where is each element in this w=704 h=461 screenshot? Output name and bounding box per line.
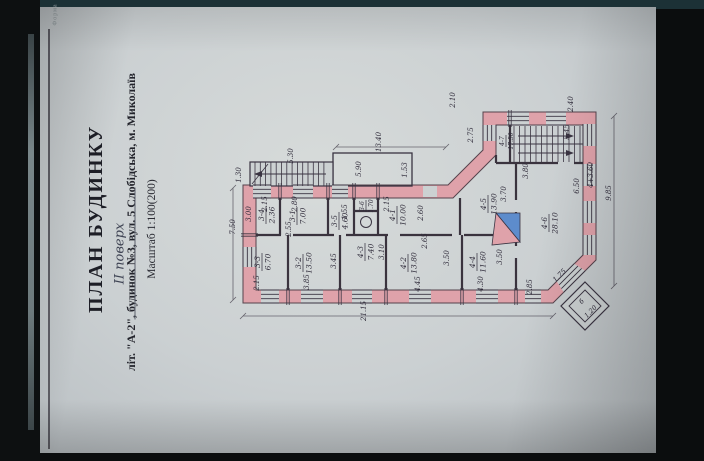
dimension-label: 2.15 (261, 196, 269, 213)
room-area: 6.70 (264, 253, 273, 270)
dimension-label: 3.00 (245, 206, 253, 222)
room-label: 4-717.50 (499, 132, 515, 149)
room-number: 3-5 (330, 215, 339, 227)
dimension-label: 4+3.60 (587, 162, 595, 189)
room-area: 13.90 (490, 193, 499, 215)
room-label: 4-213.80 (399, 252, 419, 274)
dimension-label: 6.50 (573, 178, 581, 194)
dimension-label: 2.40 (567, 96, 575, 113)
room-number: 4-6 (540, 217, 549, 230)
door-opening (423, 186, 437, 197)
room-area: 7.40 (367, 243, 376, 260)
dimension-label: 5.45 (563, 124, 571, 140)
page-edge (28, 34, 34, 430)
room-area: 7.00 (299, 207, 308, 224)
dimension-label: 21.15 (360, 300, 368, 322)
photo-of-floor-plan-document: Форма ПЛАН БУДИНКУ літ. "А-2", будинок №… (0, 0, 704, 461)
window (301, 291, 323, 303)
window (332, 186, 348, 198)
room-label: 4-37.40 (356, 243, 376, 261)
dimension-label: 3.50 (443, 250, 451, 266)
room-area: 13.50 (305, 252, 314, 274)
room-area: 13.80 (410, 252, 419, 274)
window (546, 113, 566, 125)
dimension-label: 2.65 (421, 233, 429, 250)
dimension-label: 3.85 (303, 274, 311, 290)
floor-plan-drawing: 3-42.363-17.003-54.603-61.704-110.004-51… (40, 7, 704, 461)
wc-fixture-icon (361, 217, 372, 228)
room-number: 4-4 (468, 256, 477, 269)
room-label: 4-411.60 (468, 251, 488, 273)
dimension-label: 2.75 (467, 127, 475, 144)
dimension-label: 2.15 (253, 275, 261, 292)
dimension-label: 2.80 (291, 196, 299, 213)
dimension-label: 1.53 (401, 162, 409, 178)
window (293, 186, 313, 198)
dimension-label: 13.40 (375, 131, 383, 152)
room-label: 3-213.50 (294, 252, 314, 274)
dimension-label: 2.55 (285, 221, 293, 238)
window (253, 186, 271, 198)
room-area: 28.10 (551, 212, 560, 235)
dimension-label: 3.80 (522, 163, 530, 179)
room-label: 4-513.90 (479, 193, 499, 215)
dimension-label: 1.30 (235, 167, 243, 183)
dimension-label: 2.10 (449, 92, 457, 109)
window (584, 235, 596, 255)
dimension-label: 3.10 (378, 244, 386, 260)
dimension-label: 3.45 (330, 253, 338, 269)
room-number: 3-3 (253, 256, 262, 268)
dimension-label: 9.85 (605, 185, 613, 201)
corner-balcony (561, 282, 609, 330)
stove (492, 213, 520, 245)
window (352, 291, 372, 303)
dimension-label: 4.30 (477, 276, 485, 293)
dimension-label: 2.60 (417, 205, 425, 222)
dimension-label: 1.55 (341, 204, 349, 220)
dimension-label: 5.30 (287, 148, 295, 164)
room-number: 3-2 (294, 257, 303, 269)
dimension-label: 5.90 (355, 161, 363, 177)
room-number: 4-2 (399, 257, 408, 270)
dimension-label: 7.50 (229, 219, 237, 235)
window (507, 113, 529, 125)
room-number: 4-5 (479, 198, 488, 211)
room-number: 4-3 (356, 246, 365, 259)
dimension-label: 4.45 (414, 276, 422, 293)
room-area: 17.50 (508, 132, 515, 149)
room-number: 3-6 (359, 201, 366, 211)
window (584, 201, 596, 223)
room-area: 11.60 (479, 251, 488, 273)
dimension-label: 2.15 (383, 196, 391, 213)
window (484, 125, 496, 141)
photo-background-left (0, 0, 40, 461)
room-label: 4-628.10 (540, 212, 560, 235)
room-number: 4-7 (499, 136, 506, 147)
dimension-label: 3.50 (496, 249, 504, 265)
room-area: 10.00 (399, 204, 408, 226)
dimension-label: 2.85 (526, 279, 534, 296)
document-paper: Форма ПЛАН БУДИНКУ літ. "А-2", будинок №… (40, 7, 656, 453)
dimension-label: 3.70 (500, 186, 508, 202)
stair-arrow-head (566, 150, 574, 156)
window (261, 291, 279, 303)
room-area: 1.70 (368, 199, 375, 213)
window (584, 124, 596, 146)
